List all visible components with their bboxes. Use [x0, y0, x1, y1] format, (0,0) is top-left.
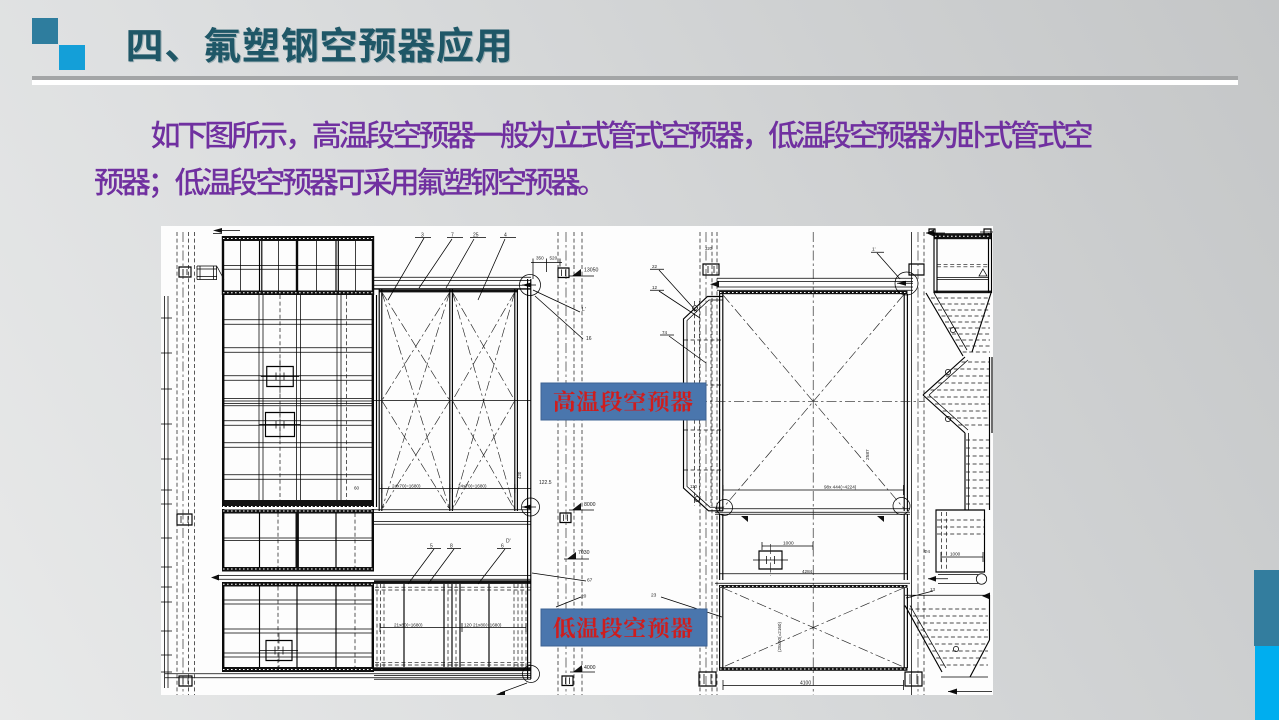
svg-text:1000: 1000: [783, 541, 794, 547]
svg-text:22: 22: [652, 264, 658, 269]
svg-text:4284: 4284: [802, 569, 813, 574]
svg-text:16: 16: [586, 336, 592, 342]
svg-text:3: 3: [421, 233, 424, 239]
svg-text:4000: 4000: [584, 665, 596, 671]
svg-text:60: 60: [354, 486, 360, 491]
svg-text:7030: 7030: [578, 550, 590, 556]
svg-text:25: 25: [473, 233, 479, 239]
svg-text:122.5: 122.5: [539, 480, 552, 486]
svg-text:2587: 2587: [865, 449, 871, 460]
svg-text:24x70(=1680): 24x70(=1680): [392, 484, 421, 489]
svg-text:74: 74: [662, 330, 668, 335]
svg-text:Φ4: Φ4: [924, 549, 931, 554]
svg-text:D': D': [506, 539, 511, 545]
svg-text:20: 20: [581, 594, 587, 600]
svg-text:4: 4: [504, 233, 507, 239]
svg-text:13050: 13050: [584, 268, 599, 274]
svg-text:8: 8: [450, 544, 453, 550]
svg-text:520: 520: [550, 256, 558, 261]
svg-text:23: 23: [651, 593, 657, 599]
svg-text:1000: 1000: [950, 552, 961, 557]
svg-text:6: 6: [501, 544, 504, 550]
svg-text:(28x90(=2160): (28x90(=2160): [777, 622, 782, 652]
svg-text:110: 110: [690, 484, 698, 489]
svg-text:12: 12: [652, 285, 658, 290]
svg-text:5: 5: [430, 544, 433, 550]
svg-text:98x 444(=4224): 98x 444(=4224): [824, 485, 857, 490]
svg-text:21x80(=1680): 21x80(=1680): [394, 623, 423, 628]
svg-text:1': 1': [872, 247, 876, 253]
svg-text:L': L': [582, 307, 586, 313]
svg-text:24x70(=1680): 24x70(=1680): [458, 484, 487, 489]
svg-text:420: 420: [517, 471, 522, 479]
svg-text:350: 350: [536, 256, 544, 261]
svg-text:120 21x80(=1680): 120 21x80(=1680): [464, 623, 502, 628]
svg-text:320: 320: [705, 246, 713, 251]
svg-text:67: 67: [587, 578, 593, 584]
svg-text:4100: 4100: [800, 681, 811, 687]
svg-text:13: 13: [930, 587, 936, 592]
svg-text:8000: 8000: [584, 502, 596, 508]
svg-text:7: 7: [451, 233, 454, 239]
